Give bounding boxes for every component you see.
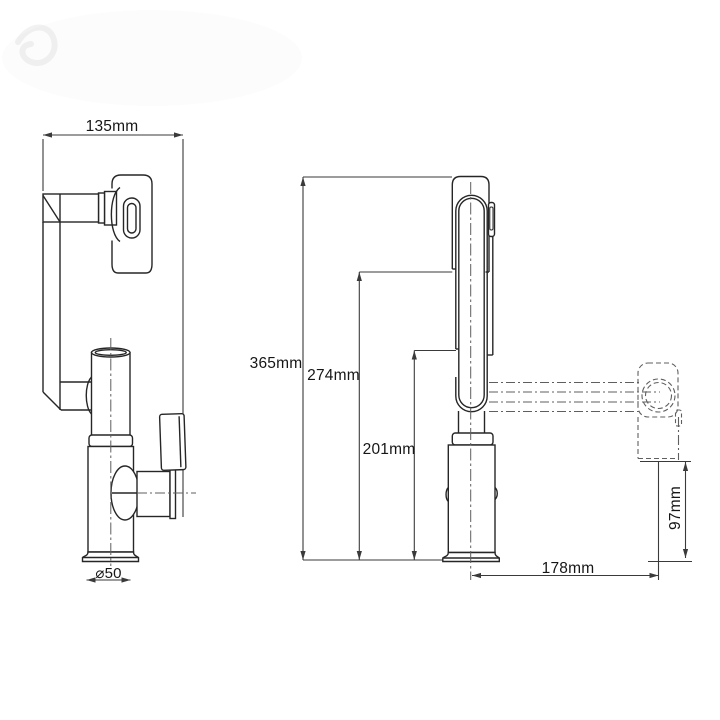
phantom-spray-head <box>489 363 682 460</box>
arrow-up-icon <box>412 351 417 360</box>
arrow-left-icon <box>87 577 96 582</box>
side-view-drawing <box>43 132 196 582</box>
hose-height-dim-label: 201mm <box>363 441 416 459</box>
base-diameter-dim-label: ⌀50 <box>95 564 121 582</box>
side-outlet-pipe <box>137 472 170 517</box>
arrow-up-icon <box>683 462 688 471</box>
spray-reach-dim-label: 178mm <box>542 560 595 578</box>
arrow-right-icon <box>650 573 659 578</box>
spray-drop-dim-label: 97mm <box>667 486 685 530</box>
diagram-canvas: 135mm ⌀50 365mm 274mm 201mm 178mm 97mm <box>0 0 720 720</box>
side-width-dim-label: 135mm <box>86 118 139 136</box>
arrow-up-icon <box>357 272 362 281</box>
shell-height-dim-label: 274mm <box>307 367 360 385</box>
arrow-down-icon <box>300 551 305 560</box>
faucet-drawing-svg <box>0 0 720 720</box>
arrow-left-icon <box>43 132 52 137</box>
arrow-right-icon <box>122 577 131 582</box>
arrow-down-icon <box>683 549 688 558</box>
side-spray-outlet-pill-inner <box>128 204 137 234</box>
arrow-down-icon <box>412 551 417 560</box>
watermark-smudge <box>2 10 302 106</box>
side-spout-collar-a <box>99 193 105 223</box>
overall-height-dim-label: 365mm <box>250 355 303 373</box>
side-handle <box>160 414 186 471</box>
arrow-left-icon <box>472 573 481 578</box>
front-pivot-joint <box>456 377 487 412</box>
arrow-right-icon <box>174 132 183 137</box>
front-column-collar <box>452 433 493 445</box>
front-column-body <box>448 445 495 553</box>
arrow-up-icon <box>300 177 305 186</box>
arrow-down-icon <box>357 551 362 560</box>
dim-274 <box>357 272 453 560</box>
